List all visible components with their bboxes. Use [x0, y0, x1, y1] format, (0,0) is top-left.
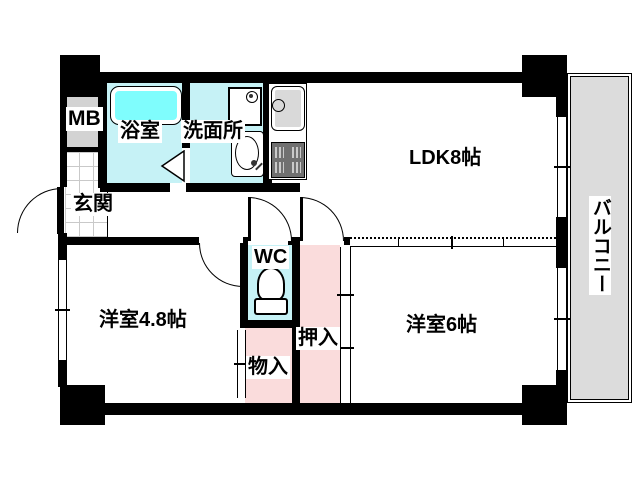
window-tick	[554, 166, 570, 168]
window-tick	[55, 309, 70, 311]
window-left-room48	[58, 260, 67, 360]
wall-below-bath-a	[100, 183, 170, 192]
door-storage	[237, 330, 246, 398]
toilet-icon	[254, 267, 288, 315]
room-label-ldk: LDK8帖	[407, 147, 483, 170]
window-tick	[337, 294, 354, 296]
room-label-western-room-4-8: 洋室4.8帖	[97, 309, 189, 332]
window-tick	[554, 318, 570, 320]
wall-hall-room48	[65, 237, 199, 245]
wall-right-b	[556, 217, 567, 268]
partition-tick	[451, 236, 453, 249]
sliding-partition-ldk-room6	[350, 237, 556, 247]
wall-wc-right	[292, 245, 300, 328]
partition-divider	[503, 239, 504, 247]
washroom-doorway-gap	[170, 183, 186, 192]
wall-bottom	[100, 403, 522, 415]
wall-mb-bottom	[64, 147, 98, 152]
room-label-closet: 押入	[296, 327, 340, 350]
room-label-balcony: バルコニー	[589, 196, 611, 295]
faucet-icon	[272, 99, 285, 112]
stove-icon	[271, 142, 305, 178]
wc-door-leaf	[248, 197, 251, 241]
closet-floor	[300, 245, 340, 403]
toilet-bowl	[257, 267, 285, 301]
toilet-tank	[254, 298, 288, 315]
room-label-entrance: 玄関	[71, 193, 115, 216]
wall-wc-bottom	[240, 320, 300, 328]
fusuma-closet	[340, 247, 351, 403]
faucet-icon	[251, 160, 257, 166]
wall-right-a	[556, 83, 567, 117]
room-label-storage: 物入	[246, 356, 290, 379]
closet-door-leaf	[300, 197, 303, 241]
room-label-western-room-6: 洋室6帖	[404, 314, 479, 337]
drain-icon	[246, 91, 258, 103]
pillar-top-left	[60, 55, 100, 97]
room-label-bathroom: 浴室	[118, 120, 162, 143]
room-label-mb: MB	[66, 107, 103, 131]
window-room6-balcony	[557, 268, 567, 370]
wall-below-wash-b	[186, 183, 300, 192]
room-label-washroom: 洗面所	[181, 120, 245, 143]
entrance-door-leaf	[57, 187, 64, 234]
window-ldk-balcony	[557, 117, 567, 217]
room-label-wc: WC	[252, 246, 289, 269]
partition-divider	[398, 239, 399, 247]
entrance-door-arc	[17, 188, 62, 233]
bathroom-folding-door-icon	[160, 150, 186, 183]
wall-top	[100, 72, 522, 83]
floor-plan: MB 浴室 洗面所 LDK8帖 玄関 WC 洋室4.8帖 物入 押入 洋室6帖 …	[0, 0, 640, 480]
pillar-bottom-left	[60, 385, 105, 425]
wall-left-c	[58, 360, 67, 387]
pillar-bottom-right	[522, 385, 567, 425]
room48-door-leaf	[240, 243, 244, 287]
